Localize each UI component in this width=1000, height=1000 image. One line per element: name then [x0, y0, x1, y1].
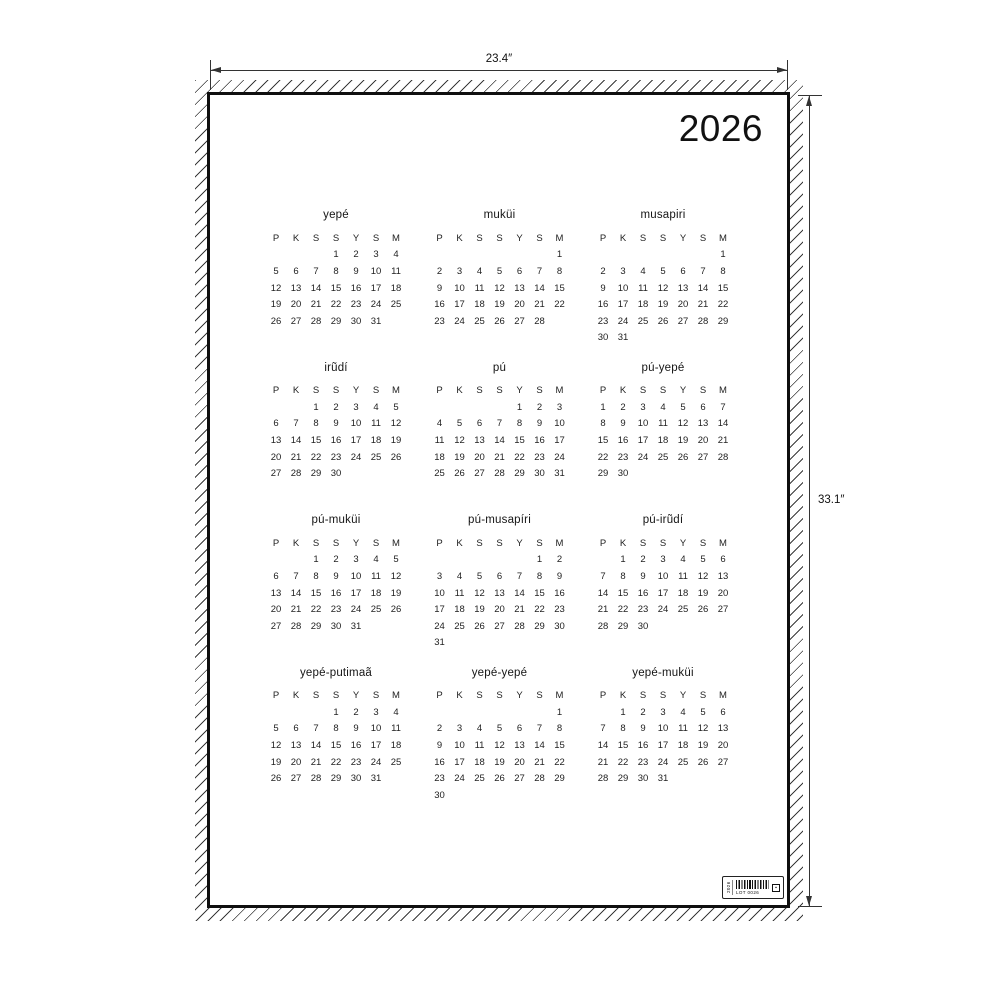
weekday-header: S — [633, 688, 653, 705]
day-cell — [530, 635, 550, 652]
day-cell: 20 — [510, 296, 530, 313]
poster-mockup-canvas: 23.4″ 33.1″ 2026 yepé PKSSYSM 1234567891… — [0, 0, 1000, 1000]
day-cell: 1 — [550, 247, 570, 264]
day-cell: 28 — [306, 313, 326, 330]
day-cell: 4 — [653, 399, 673, 416]
week-row: 28293031 — [593, 770, 733, 787]
day-cell: 22 — [550, 754, 570, 771]
week-row: 1 — [430, 247, 570, 264]
day-cell: 22 — [306, 449, 326, 466]
day-cell: 23 — [613, 449, 633, 466]
day-cell — [286, 247, 306, 264]
day-cell: 13 — [693, 416, 713, 433]
day-cell: 15 — [510, 432, 530, 449]
day-cell: 3 — [450, 721, 470, 738]
day-cell: 24 — [366, 754, 386, 771]
day-cell: 15 — [326, 280, 346, 297]
day-cell: 7 — [593, 568, 613, 585]
day-cell: 26 — [450, 465, 470, 482]
week-row: 16171819202122 — [430, 754, 570, 771]
day-cell: 19 — [470, 601, 490, 618]
day-cell: 5 — [386, 552, 406, 569]
day-cell: 24 — [550, 449, 570, 466]
day-cell: 26 — [490, 313, 510, 330]
day-cell: 21 — [530, 754, 550, 771]
day-cell: 25 — [366, 449, 386, 466]
day-cell: 4 — [673, 552, 693, 569]
weekday-header: P — [430, 535, 450, 552]
day-cell: 27 — [510, 770, 530, 787]
week-row: 25262728293031 — [430, 465, 570, 482]
day-cell — [386, 770, 406, 787]
day-cell: 18 — [386, 280, 406, 297]
day-cell: 2 — [550, 552, 570, 569]
width-dimension-label: 23.4″ — [211, 53, 787, 65]
day-cell: 31 — [550, 465, 570, 482]
day-cell: 7 — [530, 721, 550, 738]
day-cell: 18 — [366, 585, 386, 602]
day-cell: 8 — [593, 416, 613, 433]
weekday-header: S — [366, 230, 386, 247]
day-cell: 11 — [366, 416, 386, 433]
weekday-header: S — [470, 688, 490, 705]
day-cell — [673, 247, 693, 264]
day-cell — [490, 552, 510, 569]
day-cell: 22 — [550, 296, 570, 313]
day-cell — [693, 770, 713, 787]
weekday-header: K — [286, 230, 306, 247]
lot-number: LOT 0026 — [736, 890, 769, 895]
day-cell: 5 — [470, 568, 490, 585]
day-cell: 23 — [346, 296, 366, 313]
day-cell — [306, 704, 326, 721]
day-cell: 2 — [613, 399, 633, 416]
day-cell: 23 — [430, 770, 450, 787]
week-row: 23242526272829 — [430, 770, 570, 787]
day-cell: 1 — [613, 552, 633, 569]
day-cell: 19 — [673, 432, 693, 449]
day-cell: 18 — [430, 449, 450, 466]
day-cell: 20 — [266, 601, 286, 618]
day-cell: 19 — [386, 585, 406, 602]
day-cell — [653, 247, 673, 264]
day-cell: 10 — [633, 416, 653, 433]
month-name: yepé — [266, 209, 406, 221]
day-cell: 10 — [550, 416, 570, 433]
day-cell: 10 — [430, 585, 450, 602]
weekday-header: M — [713, 230, 733, 247]
day-cell — [490, 399, 510, 416]
weekday-header: Y — [346, 688, 366, 705]
day-cell — [633, 465, 653, 482]
day-cell: 3 — [346, 399, 366, 416]
month-name: pú-irũdí — [593, 514, 733, 526]
week-row: 567891011 — [266, 721, 406, 738]
week-row: 6789101112 — [266, 568, 406, 585]
week-row: 45678910 — [430, 416, 570, 433]
day-cell: 26 — [693, 601, 713, 618]
day-cell: 26 — [490, 770, 510, 787]
day-cell: 9 — [326, 416, 346, 433]
week-row: 20212223242526 — [266, 449, 406, 466]
day-cell — [470, 704, 490, 721]
day-cell: 3 — [430, 568, 450, 585]
day-cell: 23 — [430, 313, 450, 330]
weekday-header: Y — [673, 535, 693, 552]
day-cell: 9 — [430, 737, 450, 754]
day-cell: 23 — [633, 601, 653, 618]
day-cell: 19 — [266, 754, 286, 771]
day-cell: 19 — [693, 737, 713, 754]
weekday-header: S — [366, 688, 386, 705]
day-cell: 23 — [346, 754, 366, 771]
day-cell — [286, 552, 306, 569]
day-cell — [430, 704, 450, 721]
day-cell — [386, 618, 406, 635]
day-cell: 28 — [286, 465, 306, 482]
day-cell: 25 — [450, 618, 470, 635]
day-cell: 19 — [386, 432, 406, 449]
day-cell: 13 — [266, 432, 286, 449]
day-cell: 29 — [613, 770, 633, 787]
day-cell: 9 — [346, 263, 366, 280]
weekday-header: M — [386, 383, 406, 400]
day-cell: 6 — [470, 416, 490, 433]
day-cell: 21 — [593, 601, 613, 618]
week-row: 16171819202122 — [593, 296, 733, 313]
day-cell: 31 — [653, 770, 673, 787]
weekday-header: S — [470, 230, 490, 247]
day-cell: 4 — [633, 263, 653, 280]
day-cell — [306, 247, 326, 264]
day-cell: 28 — [530, 770, 550, 787]
day-cell: 2 — [346, 704, 366, 721]
day-cell: 20 — [286, 754, 306, 771]
day-cell: 6 — [490, 568, 510, 585]
day-cell: 2 — [633, 704, 653, 721]
weekday-header-row: PKSSYSM — [430, 535, 570, 552]
week-row: 123456 — [593, 552, 733, 569]
day-cell: 1 — [550, 704, 570, 721]
weekday-header: P — [266, 383, 286, 400]
day-cell — [470, 247, 490, 264]
day-cell: 24 — [653, 754, 673, 771]
day-cell: 18 — [633, 296, 653, 313]
week-row: 18192021222324 — [430, 449, 570, 466]
weekday-header: Y — [673, 688, 693, 705]
day-cell: 7 — [306, 721, 326, 738]
day-cell: 14 — [713, 416, 733, 433]
day-cell: 3 — [633, 399, 653, 416]
weekday-header: P — [593, 688, 613, 705]
weekday-header: K — [286, 383, 306, 400]
day-cell: 30 — [593, 330, 613, 347]
weekday-header: P — [266, 688, 286, 705]
day-cell — [510, 787, 530, 804]
week-row: 10111213141516 — [430, 585, 570, 602]
day-cell: 7 — [593, 721, 613, 738]
day-cell: 18 — [673, 737, 693, 754]
weekday-header: S — [326, 230, 346, 247]
day-cell: 8 — [306, 568, 326, 585]
day-cell: 16 — [326, 585, 346, 602]
day-cell: 11 — [386, 263, 406, 280]
day-cell — [713, 618, 733, 635]
day-cell: 16 — [430, 754, 450, 771]
arrow-right-icon — [777, 67, 787, 73]
day-cell: 20 — [713, 737, 733, 754]
day-cell: 6 — [673, 263, 693, 280]
day-cell: 27 — [470, 465, 490, 482]
day-cell: 3 — [613, 263, 633, 280]
week-row: 1234 — [266, 247, 406, 264]
day-cell: 23 — [326, 601, 346, 618]
day-cell — [470, 787, 490, 804]
day-cell: 16 — [430, 296, 450, 313]
day-cell: 15 — [550, 737, 570, 754]
day-cell: 22 — [613, 601, 633, 618]
day-cell: 24 — [430, 618, 450, 635]
weekday-header: K — [450, 688, 470, 705]
month-name: muküi — [430, 209, 570, 221]
weekday-header: S — [326, 383, 346, 400]
day-cell: 27 — [286, 770, 306, 787]
day-cell: 11 — [470, 737, 490, 754]
day-cell: 17 — [346, 432, 366, 449]
day-cell: 26 — [693, 754, 713, 771]
day-cell — [633, 247, 653, 264]
day-cell: 13 — [286, 280, 306, 297]
month-name: musapiri — [593, 209, 733, 221]
day-cell — [510, 552, 530, 569]
weekday-header: K — [613, 383, 633, 400]
day-cell: 7 — [286, 568, 306, 585]
week-row: 27282930 — [266, 465, 406, 482]
day-cell: 15 — [613, 585, 633, 602]
day-cell — [490, 704, 510, 721]
day-cell — [470, 552, 490, 569]
weekday-header: P — [266, 535, 286, 552]
day-cell: 2 — [326, 552, 346, 569]
week-row: 3031 — [593, 330, 733, 347]
weekday-header: S — [490, 535, 510, 552]
day-cell: 30 — [346, 770, 366, 787]
weekday-header: M — [550, 535, 570, 552]
day-cell — [286, 704, 306, 721]
day-cell: 16 — [530, 432, 550, 449]
day-cell: 5 — [266, 263, 286, 280]
weekday-header-row: PKSSYSM — [266, 230, 406, 247]
day-cell: 19 — [490, 754, 510, 771]
day-cell: 1 — [713, 247, 733, 264]
week-row: 11121314151617 — [430, 432, 570, 449]
day-cell: 23 — [633, 754, 653, 771]
day-cell: 24 — [366, 296, 386, 313]
weekday-header: S — [653, 383, 673, 400]
day-cell: 16 — [346, 737, 366, 754]
day-cell: 10 — [366, 721, 386, 738]
day-cell: 25 — [470, 313, 490, 330]
day-cell — [490, 247, 510, 264]
day-cell: 14 — [593, 737, 613, 754]
day-cell: 22 — [326, 296, 346, 313]
month-table: PKSSYSM 12345678910111213141516171819202… — [593, 535, 733, 635]
weekday-header: Y — [510, 688, 530, 705]
weekday-header: S — [653, 535, 673, 552]
month-block: musapiri PKSSYSM 12345678910111213141516… — [593, 209, 733, 362]
day-cell: 21 — [693, 296, 713, 313]
month-block: yepé-muküi PKSSYSM 123456789101112131415… — [593, 667, 733, 820]
day-cell — [530, 247, 550, 264]
week-row: 24252627282930 — [430, 618, 570, 635]
day-cell: 14 — [306, 737, 326, 754]
day-cell: 31 — [366, 313, 386, 330]
weekday-header: S — [470, 535, 490, 552]
week-row: 262728293031 — [266, 770, 406, 787]
day-cell: 12 — [693, 721, 713, 738]
week-row: 31 — [430, 635, 570, 652]
day-cell: 5 — [266, 721, 286, 738]
day-cell: 29 — [613, 618, 633, 635]
day-cell: 31 — [366, 770, 386, 787]
day-cell: 6 — [713, 704, 733, 721]
day-cell: 11 — [673, 721, 693, 738]
day-cell: 25 — [673, 601, 693, 618]
weekday-header: Y — [673, 230, 693, 247]
day-cell: 25 — [386, 296, 406, 313]
day-cell: 25 — [386, 754, 406, 771]
day-cell: 27 — [713, 601, 733, 618]
day-cell: 4 — [470, 263, 490, 280]
day-cell: 23 — [530, 449, 550, 466]
day-cell: 9 — [326, 568, 346, 585]
day-cell: 17 — [613, 296, 633, 313]
day-cell: 23 — [550, 601, 570, 618]
day-cell: 9 — [613, 416, 633, 433]
day-cell: 15 — [550, 280, 570, 297]
day-cell — [530, 787, 550, 804]
day-cell: 14 — [693, 280, 713, 297]
day-cell: 10 — [613, 280, 633, 297]
month-block: pú-yepé PKSSYSM 123456789101112131415161… — [593, 362, 733, 515]
day-cell — [470, 635, 490, 652]
day-cell: 1 — [510, 399, 530, 416]
day-cell: 27 — [510, 313, 530, 330]
day-cell: 14 — [286, 432, 306, 449]
day-cell: 24 — [450, 770, 470, 787]
day-cell: 26 — [266, 313, 286, 330]
weekday-header: M — [713, 383, 733, 400]
day-cell — [673, 465, 693, 482]
day-cell: 3 — [450, 263, 470, 280]
day-cell: 11 — [653, 416, 673, 433]
day-cell: 12 — [673, 416, 693, 433]
day-cell — [430, 247, 450, 264]
day-cell — [266, 247, 286, 264]
weekday-header: Y — [510, 230, 530, 247]
day-cell: 30 — [633, 618, 653, 635]
weekday-header: S — [653, 688, 673, 705]
day-cell: 28 — [693, 313, 713, 330]
weekday-header: S — [653, 230, 673, 247]
day-cell: 18 — [386, 737, 406, 754]
day-cell: 20 — [510, 754, 530, 771]
day-cell: 9 — [593, 280, 613, 297]
day-cell: 1 — [326, 247, 346, 264]
week-row: 12131415161718 — [266, 280, 406, 297]
day-cell: 26 — [386, 449, 406, 466]
day-cell: 14 — [593, 585, 613, 602]
day-cell: 10 — [346, 416, 366, 433]
day-cell: 4 — [366, 399, 386, 416]
day-cell: 7 — [490, 416, 510, 433]
day-cell: 25 — [366, 601, 386, 618]
day-cell: 28 — [306, 770, 326, 787]
day-cell: 10 — [450, 280, 470, 297]
week-row: 1234567 — [593, 399, 733, 416]
week-row: 12345 — [266, 399, 406, 416]
week-row: 232425262728 — [430, 313, 570, 330]
day-cell: 28 — [286, 618, 306, 635]
day-cell: 21 — [286, 449, 306, 466]
year-title: 2026 — [679, 108, 763, 150]
day-cell: 27 — [490, 618, 510, 635]
day-cell: 15 — [326, 737, 346, 754]
product-label: 2026 LOT 0026 ▪ — [722, 876, 784, 899]
day-cell — [673, 330, 693, 347]
barcode-icon — [736, 880, 769, 889]
day-cell: 11 — [450, 585, 470, 602]
week-row: 1 — [593, 247, 733, 264]
day-cell: 11 — [386, 721, 406, 738]
weekday-header: K — [450, 230, 470, 247]
month-block: pú-muküi PKSSYSM 12345678910111213141516… — [266, 514, 406, 667]
day-cell: 20 — [286, 296, 306, 313]
weekday-header: Y — [510, 383, 530, 400]
day-cell — [450, 787, 470, 804]
week-row: 22232425262728 — [593, 449, 733, 466]
day-cell — [286, 399, 306, 416]
day-cell: 17 — [366, 737, 386, 754]
day-cell: 22 — [593, 449, 613, 466]
day-cell: 13 — [286, 737, 306, 754]
day-cell — [593, 247, 613, 264]
label-middle: LOT 0026 — [736, 880, 769, 896]
day-cell: 2 — [326, 399, 346, 416]
day-cell: 5 — [490, 721, 510, 738]
day-cell: 4 — [673, 704, 693, 721]
weekday-header: K — [613, 535, 633, 552]
week-row: 1234 — [266, 704, 406, 721]
weekday-header-row: PKSSYSM — [430, 688, 570, 705]
day-cell: 18 — [366, 432, 386, 449]
weekday-header: P — [593, 535, 613, 552]
day-cell: 7 — [713, 399, 733, 416]
day-cell: 6 — [266, 568, 286, 585]
day-cell: 14 — [510, 585, 530, 602]
day-cell: 28 — [530, 313, 550, 330]
day-cell: 20 — [693, 432, 713, 449]
weekday-header: S — [306, 383, 326, 400]
day-cell: 6 — [693, 399, 713, 416]
day-cell — [593, 552, 613, 569]
month-table: PKSSYSM 12345678910111213141516171819202… — [266, 383, 406, 483]
day-cell: 6 — [286, 721, 306, 738]
certification-mark: ▪ — [772, 884, 780, 892]
day-cell — [653, 618, 673, 635]
calendar-grid: yepé PKSSYSM 123456789101112131415161718… — [266, 209, 757, 819]
day-cell — [593, 704, 613, 721]
